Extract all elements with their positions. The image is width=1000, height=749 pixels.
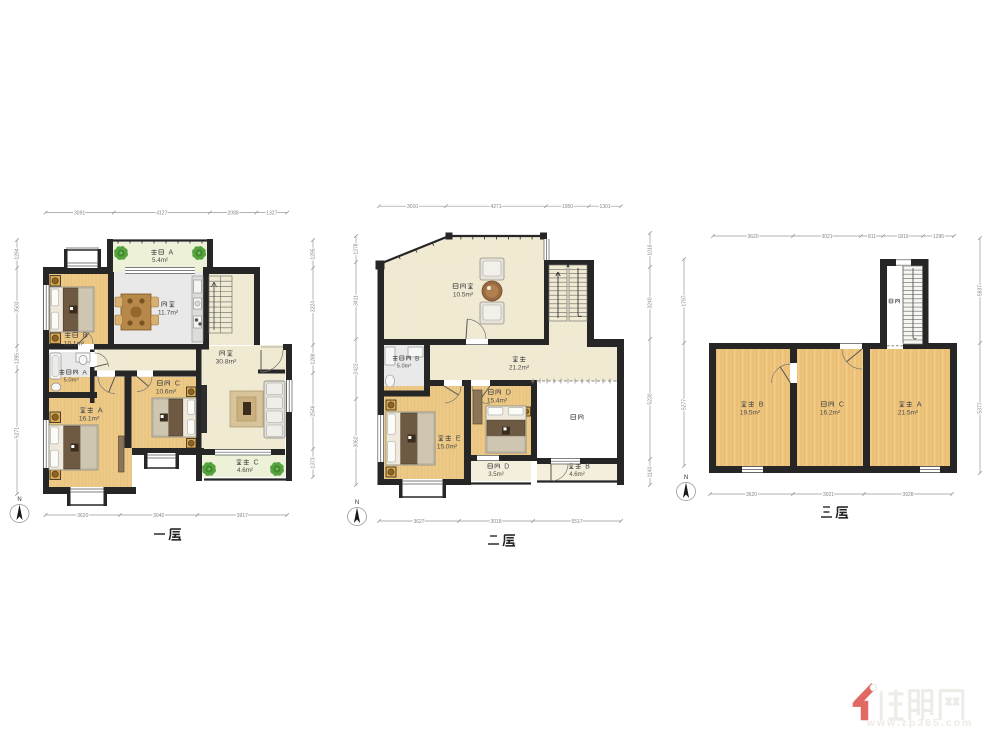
svg-text:1296: 1296 (933, 234, 944, 240)
svg-text:1016: 1016 (648, 244, 654, 255)
svg-text:16.1m²: 16.1m² (79, 415, 100, 422)
svg-text:N: N (684, 475, 688, 481)
svg-text:1294: 1294 (15, 248, 21, 259)
svg-text:1301: 1301 (599, 204, 610, 210)
svg-text:N: N (355, 500, 359, 506)
svg-text:10.1m²: 10.1m² (64, 340, 85, 347)
svg-text:5271: 5271 (15, 427, 21, 438)
svg-text:B: B (415, 355, 419, 362)
svg-text:4127: 4127 (156, 211, 167, 217)
svg-text:15.0m²: 15.0m² (437, 443, 458, 450)
svg-text:3021: 3021 (821, 234, 832, 240)
svg-text:11.7m²: 11.7m² (158, 310, 179, 317)
svg-text:A: A (917, 400, 922, 409)
svg-text:3411: 3411 (354, 295, 360, 306)
svg-text:30.8m²: 30.8m² (216, 359, 238, 366)
svg-text:3928: 3928 (902, 492, 913, 498)
svg-text:A: A (169, 249, 174, 257)
svg-text:3.5m²: 3.5m² (488, 471, 504, 478)
svg-text:B: B (83, 331, 88, 340)
svg-text:1950: 1950 (562, 204, 573, 210)
svg-text:3091: 3091 (74, 211, 85, 217)
svg-text:3620: 3620 (77, 513, 88, 519)
svg-text:2088: 2088 (228, 211, 239, 217)
svg-text:3240: 3240 (648, 297, 654, 308)
svg-text:21.2m²: 21.2m² (509, 364, 530, 371)
svg-text:5230: 5230 (648, 393, 654, 404)
svg-text:19.5m²: 19.5m² (740, 409, 761, 416)
svg-text:4.6m²: 4.6m² (237, 467, 253, 474)
svg-text:1288: 1288 (311, 353, 317, 364)
svg-text:3010: 3010 (407, 204, 418, 210)
svg-text:3620: 3620 (747, 234, 758, 240)
svg-text:3620: 3620 (746, 492, 757, 498)
svg-text:1140: 1140 (648, 466, 654, 477)
svg-text:5.4m²: 5.4m² (152, 257, 168, 264)
svg-text:D: D (506, 388, 511, 397)
svg-text:15.4m²: 15.4m² (487, 397, 508, 404)
svg-text:5837: 5837 (978, 285, 984, 296)
svg-text:5517: 5517 (571, 519, 582, 525)
svg-text:1327: 1327 (266, 211, 277, 217)
svg-text:A: A (98, 406, 103, 415)
svg-text:www.zp365.com: www.zp365.com (866, 717, 974, 729)
svg-text:3018: 3018 (490, 519, 501, 525)
svg-text:3503: 3503 (15, 301, 21, 312)
svg-text:3021: 3021 (823, 492, 834, 498)
svg-text:3324: 3324 (311, 301, 317, 312)
svg-text:B: B (759, 400, 764, 409)
svg-text:4.6m²: 4.6m² (569, 471, 585, 478)
svg-text:1295: 1295 (311, 248, 317, 259)
svg-text:D: D (504, 463, 509, 470)
svg-text:5277: 5277 (682, 399, 688, 410)
svg-text:3040: 3040 (153, 513, 164, 519)
svg-text:21.5m²: 21.5m² (898, 409, 919, 416)
svg-text:3627: 3627 (413, 519, 424, 525)
svg-text:A: A (82, 369, 87, 376)
svg-text:1373: 1373 (311, 457, 317, 468)
svg-text:E: E (456, 434, 461, 443)
svg-text:1819: 1819 (897, 234, 908, 240)
svg-text:2422: 2422 (354, 363, 360, 374)
svg-text:N: N (17, 497, 21, 503)
svg-text:5.0m²: 5.0m² (397, 364, 412, 370)
svg-text:5.0m²: 5.0m² (63, 378, 78, 384)
svg-text:2546: 2546 (311, 405, 317, 416)
svg-text:811: 811 (868, 234, 876, 240)
svg-text:10.6m²: 10.6m² (156, 388, 177, 395)
svg-text:4271: 4271 (490, 204, 501, 210)
svg-text:C: C (254, 459, 259, 467)
svg-text:1278: 1278 (354, 243, 360, 254)
svg-text:1797: 1797 (682, 295, 688, 306)
svg-text:5377: 5377 (978, 402, 984, 413)
svg-text:10.5m²: 10.5m² (453, 291, 474, 298)
svg-text:16.2m²: 16.2m² (820, 409, 841, 416)
svg-text:B: B (585, 463, 590, 470)
svg-text:3917: 3917 (237, 513, 248, 519)
svg-text:C: C (839, 400, 844, 409)
svg-text:C: C (175, 379, 180, 388)
svg-text:1395: 1395 (15, 353, 21, 364)
svg-text:3062: 3062 (354, 436, 360, 447)
